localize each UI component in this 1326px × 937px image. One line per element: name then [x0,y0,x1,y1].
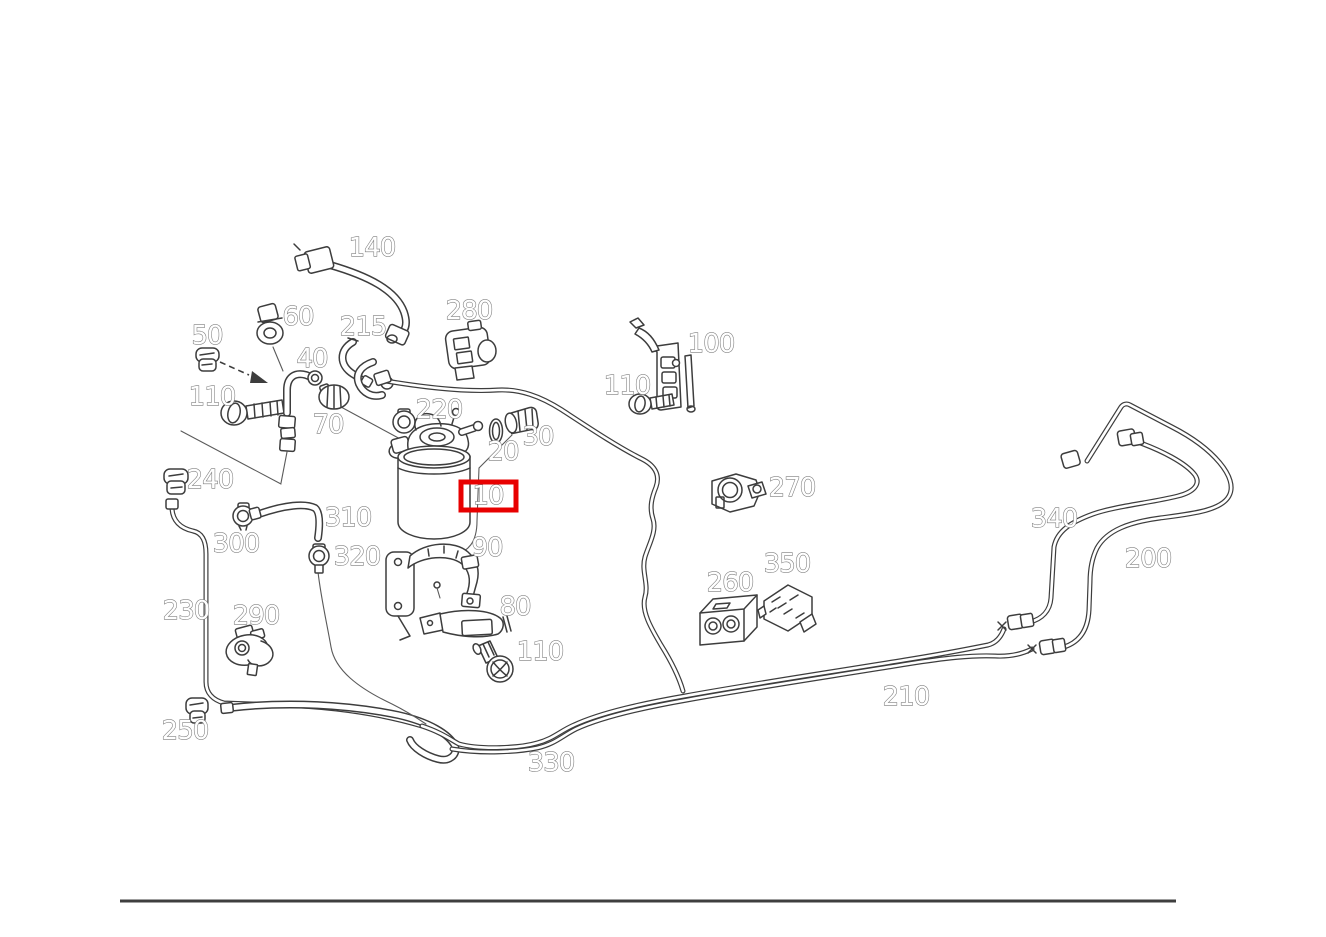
part-label-80[interactable]: 80 [499,592,530,622]
part-label-100[interactable]: 100 [688,329,735,359]
part-label-310[interactable]: 310 [325,503,372,533]
part-label-250[interactable]: 250 [162,716,209,746]
pipe-connector-340 [998,613,1034,630]
fuel-hose-310 [249,505,319,538]
part-label-110-lower[interactable]: 110 [517,637,564,667]
part-label-270[interactable]: 270 [769,473,816,503]
sensor-60 [257,303,283,344]
part-label-215[interactable]: 215 [340,312,387,342]
part-label-110-upper-left[interactable]: 110 [189,382,236,412]
part-label-140[interactable]: 140 [349,233,396,263]
parts-diagram-page: 1406021528050401001101107022030201027024… [0,0,1326,937]
part-label-50[interactable]: 50 [191,321,222,351]
part-label-30[interactable]: 30 [522,422,553,452]
part-label-20[interactable]: 20 [487,437,518,467]
part-label-350[interactable]: 350 [764,549,811,579]
part-label-300[interactable]: 300 [213,529,260,559]
part-label-70[interactable]: 70 [312,410,343,440]
clamp-270 [712,474,766,512]
part-label-290[interactable]: 290 [233,601,280,631]
part-label-200[interactable]: 200 [1125,544,1172,574]
pointer-arrow-50 [220,362,268,383]
pump-bracket-290 [224,625,273,676]
part-label-330[interactable]: 330 [528,748,575,778]
part-label-10[interactable]: 10 [472,481,503,511]
fitting-70 [319,383,349,409]
part-label-280[interactable]: 280 [446,296,493,326]
part-label-210[interactable]: 210 [883,682,930,712]
part-label-230[interactable]: 230 [163,596,210,626]
valve-350 [758,585,816,632]
part-label-260[interactable]: 260 [707,568,754,598]
connector-280 [445,320,496,380]
pipe-connector-200 [1028,638,1066,655]
connector-box-260 [700,595,757,645]
part-label-220[interactable]: 220 [416,395,463,425]
clamp-320 [309,544,329,573]
part-label-320[interactable]: 320 [334,542,381,572]
fuel-pipe-200 [1060,404,1231,647]
part-label-340[interactable]: 340 [1031,504,1078,534]
part-label-40[interactable]: 40 [296,344,327,374]
parts-diagram-canvas: 1406021528050401001101107022030201027024… [0,0,1326,937]
clamp-220 [393,409,415,433]
bracket-80 [420,582,511,637]
part-label-110-upper-right[interactable]: 110 [604,371,651,401]
part-label-240[interactable]: 240 [187,465,234,495]
clamp-240 [164,469,188,494]
part-label-90[interactable]: 90 [471,533,502,563]
clamp-50 [196,348,219,371]
screw-110-lower [472,641,513,682]
part-label-60[interactable]: 60 [282,302,313,332]
